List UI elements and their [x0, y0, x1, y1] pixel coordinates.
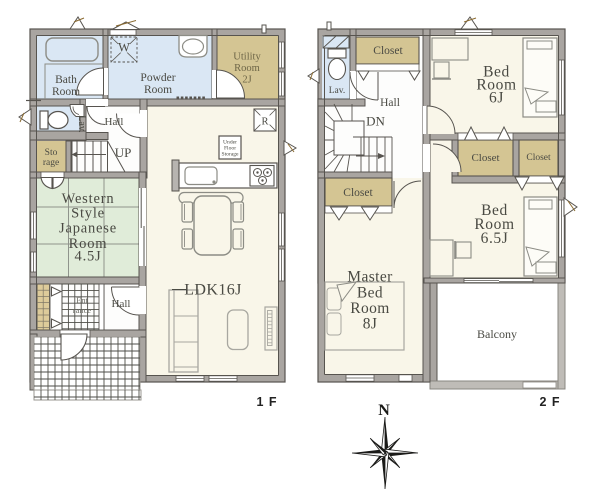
svg-text:rage: rage [43, 158, 59, 168]
svg-text:W: W [118, 41, 130, 55]
svg-text:Master: Master [347, 269, 393, 286]
svg-text:Bed: Bed [357, 285, 383, 302]
svg-text:6.5J: 6.5J [481, 230, 509, 247]
svg-text:Closet: Closet [526, 153, 551, 163]
svg-text:R: R [261, 117, 268, 128]
svg-text:Hall: Hall [105, 116, 124, 128]
svg-text:Storage: Storage [221, 152, 239, 158]
svg-text:Hall: Hall [112, 298, 131, 310]
svg-text:Style: Style [71, 206, 105, 222]
svg-text:8J: 8J [363, 316, 378, 333]
svg-text:Lav.: Lav. [329, 86, 346, 96]
svg-text:Closet: Closet [471, 152, 499, 164]
svg-text:Ent: Ent [76, 295, 88, 305]
svg-text:4.5J: 4.5J [75, 249, 102, 265]
svg-text:1 F: 1 F [256, 395, 277, 409]
svg-text:2J: 2J [242, 75, 251, 86]
svg-text:Closet: Closet [343, 187, 373, 199]
svg-text:Balcony: Balcony [477, 327, 517, 341]
svg-text:Sto: Sto [45, 148, 58, 158]
svg-text:Hall: Hall [380, 97, 400, 109]
svg-text:Room: Room [350, 300, 390, 317]
svg-text:rance: rance [73, 305, 92, 315]
svg-text:N: N [378, 402, 390, 419]
svg-text:UP: UP [115, 145, 132, 160]
svg-text:Powder: Powder [140, 72, 175, 84]
svg-text:Bath: Bath [55, 74, 77, 86]
svg-text:Utility: Utility [233, 52, 261, 63]
svg-text:DN: DN [366, 114, 385, 129]
svg-text:Room: Room [144, 84, 172, 96]
svg-text:Room: Room [234, 63, 260, 74]
svg-text:6J: 6J [489, 90, 504, 107]
svg-text:Lav.: Lav. [76, 115, 87, 132]
svg-text:LDK16J: LDK16J [184, 282, 242, 299]
svg-text:Japanese: Japanese [59, 221, 117, 237]
svg-text:2 F: 2 F [539, 395, 560, 409]
svg-text:Room: Room [52, 86, 80, 98]
svg-text:Closet: Closet [373, 45, 403, 57]
